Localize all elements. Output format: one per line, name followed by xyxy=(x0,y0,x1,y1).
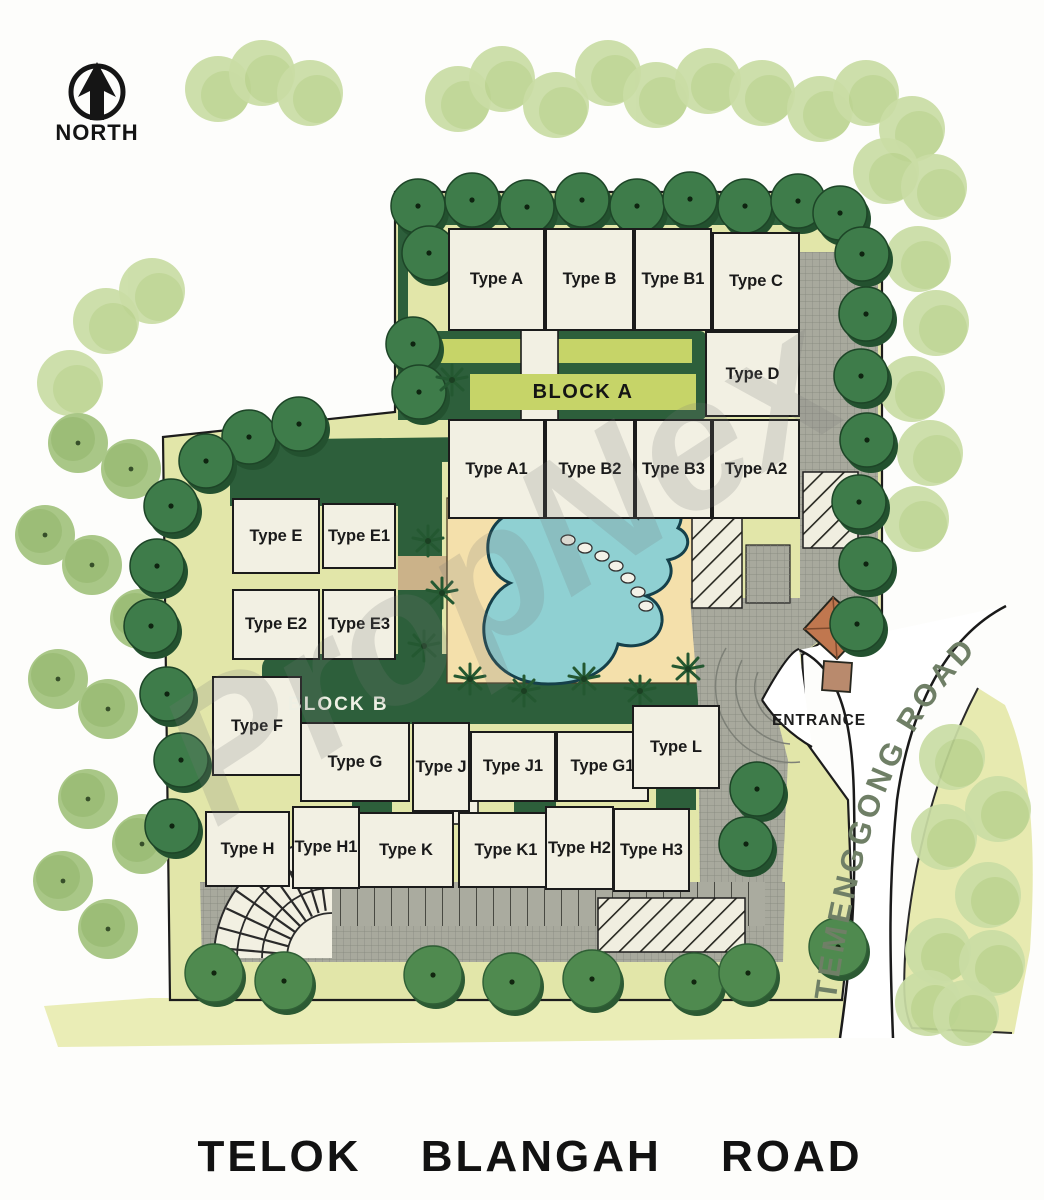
tree-icon xyxy=(73,288,139,354)
tree-icon xyxy=(37,350,103,416)
unit-type-b: Type B xyxy=(545,228,634,331)
unit-type-e1: Type E1 xyxy=(322,503,396,569)
unit-type-h: Type H xyxy=(205,811,290,887)
tree-icon xyxy=(78,679,138,739)
unit-type-b2: Type B2 xyxy=(545,419,635,519)
tree-icon xyxy=(62,535,122,595)
tree-icon xyxy=(919,724,985,790)
unit-type-b3: Type B3 xyxy=(635,419,712,519)
unit-type-a: Type A xyxy=(448,228,545,331)
tree-icon xyxy=(78,899,138,959)
unit-type-c: Type C xyxy=(712,232,800,331)
unit-label: Type H xyxy=(221,840,275,858)
tree-icon xyxy=(729,60,795,126)
unit-label: Type H3 xyxy=(620,841,683,859)
block-b-label: BLOCK B xyxy=(288,694,389,716)
unit-type-k1: Type K1 xyxy=(458,812,554,888)
tree-icon xyxy=(48,413,108,473)
unit-label: Type D xyxy=(726,365,780,383)
unit-label: Type J1 xyxy=(483,757,543,775)
unit-type-h3: Type H3 xyxy=(613,808,690,892)
unit-label: Type A xyxy=(470,270,523,288)
unit-label: Type H2 xyxy=(548,839,611,857)
unit-type-k: Type K xyxy=(358,812,454,888)
unit-type-f: Type F xyxy=(212,676,302,776)
unit-type-g: Type G xyxy=(300,722,410,802)
tree-icon xyxy=(955,862,1021,928)
unit-label: Type H1 xyxy=(295,838,358,856)
tree-icon xyxy=(883,486,949,552)
site-plan-drawing: TEMENGGONG ROAD xyxy=(0,0,1044,1200)
tree-icon xyxy=(901,154,967,220)
tree-icon xyxy=(903,290,969,356)
unit-label: Type G1 xyxy=(571,757,635,775)
unit-label: Type L xyxy=(650,738,702,756)
unit-label: Type B1 xyxy=(642,270,705,288)
unit-label: Type E2 xyxy=(245,615,307,633)
unit-type-a1: Type A1 xyxy=(448,419,545,519)
north-arrow-icon xyxy=(71,62,123,120)
unit-label: Type B2 xyxy=(559,460,622,478)
unit-type-l: Type L xyxy=(632,705,720,789)
tree-icon xyxy=(33,851,93,911)
unit-label: Type B xyxy=(563,270,617,288)
tree-icon xyxy=(277,60,343,126)
unit-label: Type E3 xyxy=(328,615,390,633)
site-plan: TEMENGGONG ROAD NORTH Type A Type B Type… xyxy=(0,0,1044,1200)
unit-type-a2: Type A2 xyxy=(712,419,800,519)
unit-type-j: Type J xyxy=(412,722,470,812)
unit-type-h1: Type H1 xyxy=(292,806,360,889)
unit-type-j1: Type J1 xyxy=(470,731,556,802)
ramp-bottom xyxy=(598,898,745,952)
telok-blangah-road-label: TELOK BLANGAH ROAD xyxy=(60,1132,1000,1182)
unit-type-e2: Type E2 xyxy=(232,589,320,660)
block-a-label: BLOCK A xyxy=(533,381,634,404)
unit-label: Type G xyxy=(328,753,383,771)
entrance-label: ENTRANCE xyxy=(772,712,866,730)
unit-type-b1: Type B1 xyxy=(634,228,712,331)
tree-icon xyxy=(933,980,999,1046)
tree-icon xyxy=(911,804,977,870)
unit-label: Type C xyxy=(729,272,783,290)
unit-type-d: Type D xyxy=(705,331,800,417)
unit-label: Type B3 xyxy=(642,460,705,478)
unit-type-h2: Type H2 xyxy=(545,806,614,890)
unit-label: Type A1 xyxy=(465,460,527,478)
tree-icon xyxy=(897,420,963,486)
unit-label: Type A2 xyxy=(725,460,787,478)
unit-label: Type K xyxy=(379,841,433,859)
courtyard-lawn xyxy=(436,339,692,363)
unit-type-e: Type E xyxy=(232,498,320,574)
north-label: NORTH xyxy=(42,120,152,146)
tree-icon xyxy=(28,649,88,709)
unit-label: Type K1 xyxy=(475,841,538,859)
unit-label: Type E1 xyxy=(328,527,390,545)
unit-label: Type F xyxy=(231,717,283,735)
unit-label: Type J xyxy=(415,758,466,776)
tree-icon xyxy=(885,226,951,292)
block-a-band: BLOCK A xyxy=(470,374,696,410)
unit-label: Type E xyxy=(250,527,303,545)
unit-type-e3: Type E3 xyxy=(322,589,396,660)
tree-icon xyxy=(58,769,118,829)
